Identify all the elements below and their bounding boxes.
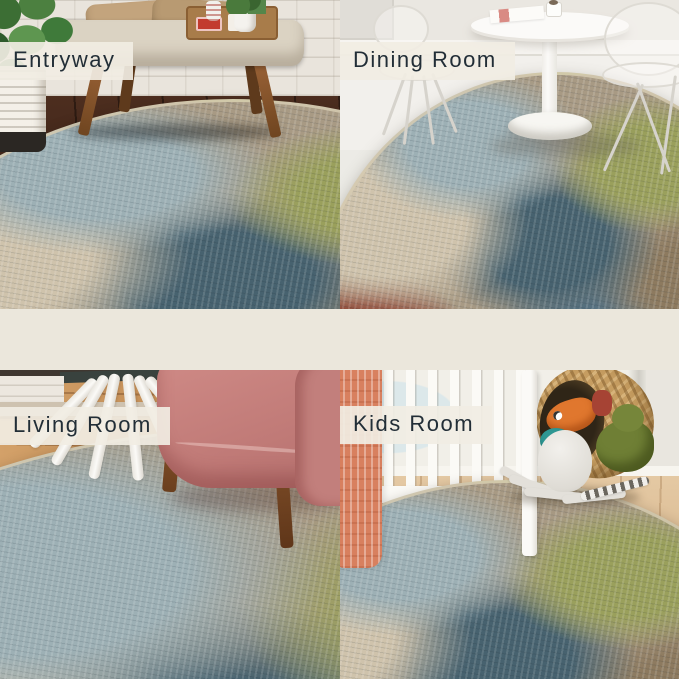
chair-leg bbox=[422, 75, 434, 145]
plush-red-toy bbox=[592, 390, 612, 416]
chair-leg bbox=[660, 75, 676, 174]
coral-curtain bbox=[340, 370, 382, 568]
label-dining-room: Dining Room bbox=[340, 42, 515, 80]
chair-armrest bbox=[295, 370, 340, 506]
bench-shadow bbox=[70, 124, 282, 140]
round-rug bbox=[340, 480, 679, 679]
decor-jar bbox=[206, 1, 221, 21]
label-kids-room: Kids Room bbox=[340, 406, 492, 444]
living-room-photo: Living Room bbox=[0, 370, 340, 679]
chair-leg bbox=[603, 84, 644, 172]
kids-room-photo: Kids Room bbox=[340, 370, 679, 679]
chair-leg bbox=[636, 82, 671, 172]
chair-leg bbox=[431, 73, 457, 133]
wire-chair-right bbox=[592, 10, 679, 180]
plush-dino-toy bbox=[596, 420, 654, 472]
product-collage: Suitable for Various Places Entryway bbox=[0, 0, 679, 679]
entryway-photo: Entryway bbox=[0, 0, 340, 309]
dining-room-photo: Dining Room bbox=[340, 0, 679, 309]
label-living-room: Living Room bbox=[0, 407, 170, 445]
tulip-table-base bbox=[508, 112, 592, 140]
label-entryway: Entryway bbox=[0, 42, 133, 80]
chair-leg bbox=[403, 75, 414, 145]
crib-corner-post bbox=[522, 370, 537, 556]
small-plant-leaves bbox=[226, 0, 266, 14]
tulip-table-stem bbox=[542, 30, 557, 122]
coffee-cup bbox=[546, 2, 562, 17]
chair-leg bbox=[382, 73, 407, 136]
plush-octopus-head bbox=[538, 430, 592, 492]
